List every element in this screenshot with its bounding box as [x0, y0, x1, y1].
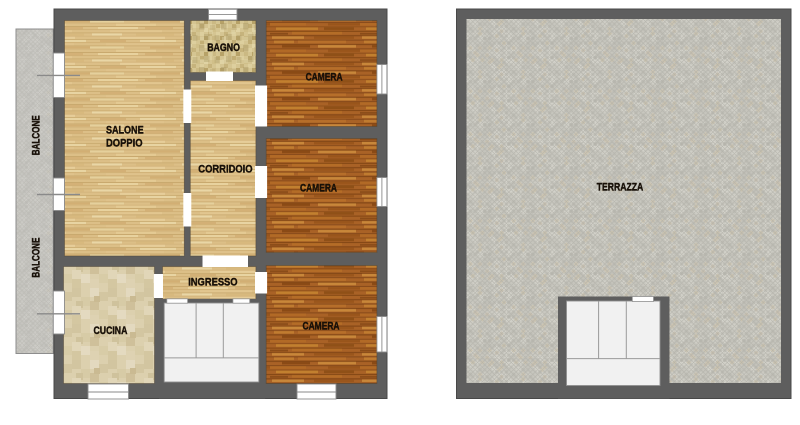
- svg-text:BAGNO: BAGNO: [207, 42, 240, 54]
- svg-text:CORRIDOIO: CORRIDOIO: [198, 164, 253, 176]
- svg-text:CAMERA: CAMERA: [300, 183, 337, 195]
- svg-text:SALONE: SALONE: [106, 125, 144, 137]
- svg-text:DOPPIO: DOPPIO: [106, 138, 143, 150]
- svg-text:BALCONE: BALCONE: [31, 115, 43, 155]
- svg-text:BALCONE: BALCONE: [31, 238, 43, 278]
- svg-text:CAMERA: CAMERA: [303, 321, 340, 333]
- svg-text:TERRAZZA: TERRAZZA: [597, 181, 644, 193]
- svg-text:CUCINA: CUCINA: [94, 325, 128, 337]
- svg-text:INGRESSO: INGRESSO: [188, 276, 238, 288]
- svg-text:CAMERA: CAMERA: [306, 71, 343, 83]
